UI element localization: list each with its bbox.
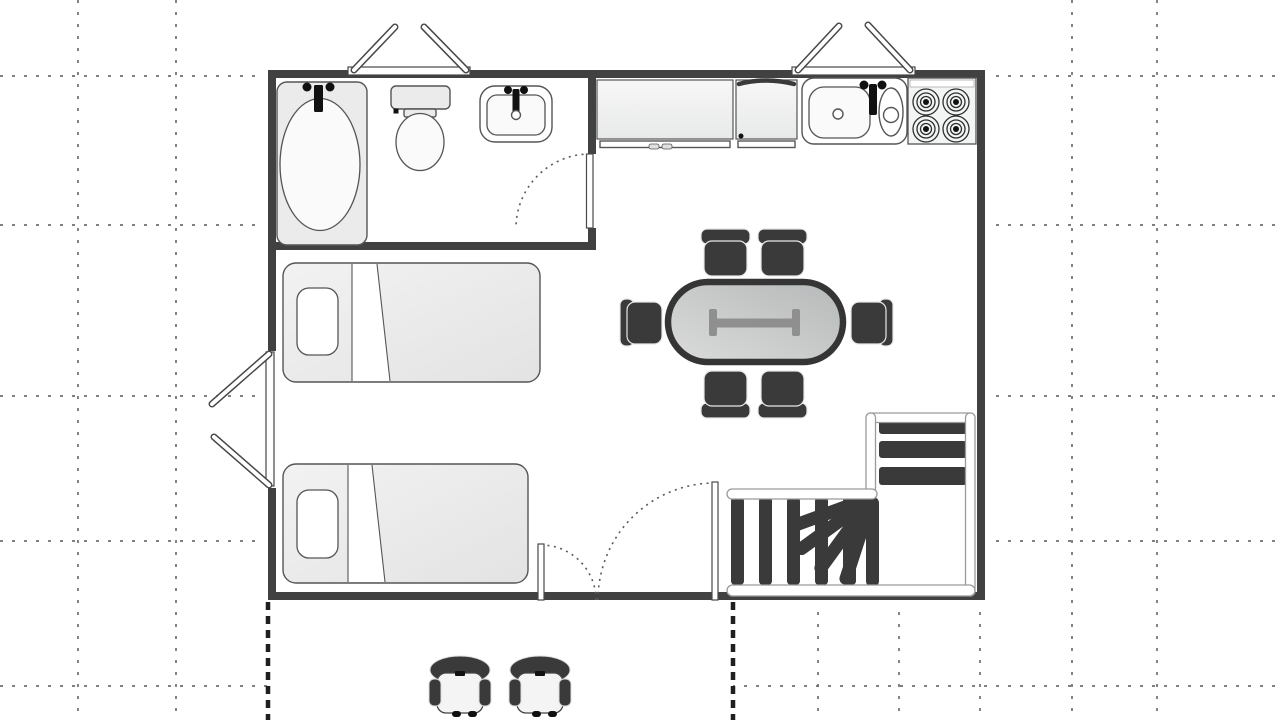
- chair-seat: [851, 302, 886, 344]
- pillow: [297, 490, 338, 558]
- faucet-spout-icon: [314, 85, 323, 112]
- kitchen-cabinet: [736, 80, 797, 148]
- chair-armrest: [479, 679, 491, 706]
- bed-2: [283, 464, 528, 583]
- stair-tread: [787, 497, 800, 585]
- burner-icon: [913, 116, 939, 142]
- window-glass-bar: [266, 352, 274, 486]
- toilet-bowl: [396, 114, 444, 171]
- chair-armrest: [429, 679, 441, 706]
- stove: [908, 78, 976, 144]
- dining-chair-bottom-1: [701, 371, 750, 418]
- stair-tread: [879, 467, 967, 485]
- door-leaf-small: [538, 544, 544, 600]
- kitchen-sink: [802, 78, 907, 144]
- sink-drain: [833, 109, 843, 119]
- bathtub-basin: [280, 99, 360, 231]
- window-glass-bar: [348, 67, 470, 75]
- faucet-handle-icon: [326, 83, 335, 92]
- window-left: [212, 351, 278, 488]
- bathtub: [277, 82, 367, 245]
- stringer: [727, 585, 975, 596]
- faucet-handle-icon: [303, 83, 312, 92]
- kitchen-counter: [597, 80, 733, 149]
- terrace-floor: [268, 600, 733, 720]
- patio-chair-1: [429, 656, 491, 717]
- chair-seat: [627, 302, 662, 344]
- stringer: [966, 413, 976, 596]
- stringer: [866, 413, 975, 423]
- kitchen: [597, 78, 976, 149]
- chair-seat: [704, 241, 747, 276]
- faucet-handle-icon: [504, 86, 512, 94]
- dining-chair-left: [620, 299, 662, 346]
- stair-tread: [731, 497, 744, 585]
- dining-chair-top-2: [758, 229, 807, 276]
- faucet-handle-icon: [860, 81, 869, 90]
- window-top-left: [348, 27, 470, 75]
- chair-armrest: [509, 679, 521, 706]
- chair-armrest: [559, 679, 571, 706]
- dining-chair-top-1: [701, 229, 750, 276]
- cabinet-top: [736, 80, 797, 139]
- dining-chair-bottom-2: [758, 371, 807, 418]
- stringer: [727, 489, 877, 499]
- cabinet-handle: [662, 144, 672, 149]
- sink-drain: [512, 111, 521, 120]
- chair-notch: [455, 671, 465, 676]
- chair-seat: [761, 241, 804, 276]
- counter-top: [597, 80, 733, 139]
- burner-icon: [913, 89, 939, 115]
- stringer: [866, 413, 876, 498]
- burner-icon: [943, 89, 969, 115]
- floor-plan-drawing: Studio apartment floor plan: [0, 0, 1280, 720]
- faucet-handle-icon: [878, 81, 887, 90]
- upper-flight-treads: [879, 417, 967, 485]
- door-leaf-large: [712, 482, 718, 600]
- dining-table: [668, 282, 843, 362]
- cabinet-handle: [649, 144, 659, 149]
- dining-chair-right: [851, 299, 893, 346]
- chair-notch: [535, 671, 545, 676]
- window-glass-bar: [792, 67, 915, 75]
- chair-foot: [532, 711, 541, 717]
- stove-back-panel: [910, 80, 974, 87]
- patio-chair-2: [509, 656, 571, 717]
- sink-small-drain: [884, 108, 899, 123]
- burner-icon: [943, 116, 969, 142]
- chair-seat: [517, 673, 563, 713]
- chair-seat: [704, 371, 747, 406]
- chair-foot: [452, 711, 461, 717]
- toilet-valve-icon: [394, 109, 399, 114]
- chair-seat: [761, 371, 804, 406]
- chair-seat: [437, 673, 483, 713]
- chair-foot: [548, 711, 557, 717]
- faucet-handle-icon: [520, 86, 528, 94]
- faucet-spout-icon: [513, 89, 520, 112]
- faucet-spout-icon: [869, 84, 877, 115]
- door-leaf: [587, 154, 594, 228]
- chair-foot: [468, 711, 477, 717]
- bed-1: [283, 263, 540, 382]
- bathroom-sink: [480, 86, 552, 142]
- cabinet-base: [738, 141, 795, 148]
- toilet-tank: [391, 86, 450, 109]
- pillow: [297, 288, 338, 355]
- floor-plan-canvas: Studio apartment floor plan: [0, 0, 1280, 720]
- window-top-right: [792, 25, 915, 75]
- stair-tread: [879, 441, 967, 458]
- cabinet-knob: [739, 134, 744, 139]
- stair-tread: [759, 497, 772, 585]
